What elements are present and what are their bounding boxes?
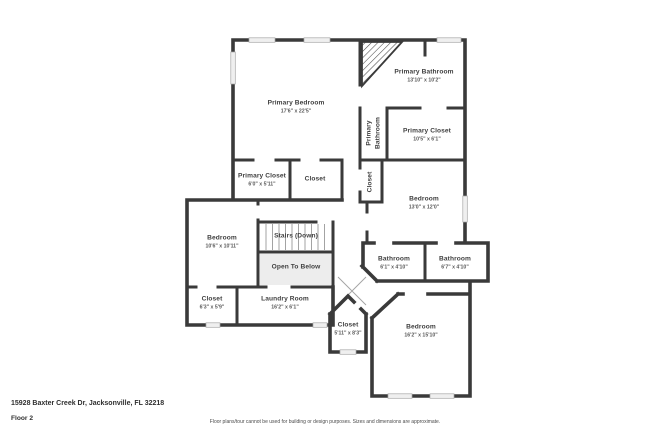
room-dims: 17'6" x 22'5" (268, 108, 325, 115)
room-dims: 6'7" x 4'10" (439, 264, 471, 271)
room-name: Primary Bedroom (268, 99, 325, 108)
room-label-primary-bathroom: Primary Bathroom 13'10" x 10'2" (394, 68, 453, 83)
room-label-stairs: Stairs (Down) (274, 233, 318, 242)
floor-plan-page: Primary Bedroom 17'6" x 22'5" Primary Ba… (0, 0, 650, 434)
room-label-primary-bathroom-wc: Primary Bathroom (365, 113, 382, 153)
room-label-bathroom-right: Bathroom 6'7" x 4'10" (439, 255, 471, 270)
room-name: Bedroom (205, 234, 238, 243)
room-label-primary-closet-left: Primary Closet 6'0" x 5'11" (238, 172, 286, 187)
room-dims: 16'2" x 15'10" (404, 332, 437, 339)
room-name: Closet (200, 295, 225, 304)
room-name: Primary Bathroom (394, 68, 453, 77)
room-dims: 16'2" x 6'1" (261, 304, 309, 311)
room-dims: 5'11" x 8'3" (334, 330, 361, 337)
room-label-open-to-below: Open To Below (272, 264, 321, 273)
room-label-closet-hall: Closet (367, 172, 376, 193)
room-name: Closet (367, 172, 376, 193)
room-name: Stairs (Down) (274, 233, 318, 242)
room-name: Bedroom (404, 323, 437, 332)
room-label-bedroom-right: Bedroom 13'0" x 12'0" (409, 195, 439, 210)
room-name: Bedroom (409, 195, 439, 204)
room-name: Bathroom (439, 255, 471, 264)
floor-plan-drawing (0, 0, 650, 434)
room-dims: 6'1" x 4'10" (378, 264, 410, 271)
room-name: Laundry Room (261, 295, 309, 304)
room-dims: 6'3" x 5'9" (200, 304, 225, 311)
room-name: Bathroom (378, 255, 410, 264)
room-label-closet-top: Closet (305, 176, 326, 185)
room-name: Closet (334, 321, 361, 330)
room-dims: 13'0" x 12'0" (409, 204, 439, 211)
room-name: Closet (305, 176, 326, 185)
footer-disclaimer: Floor plans/tour cannot be used for buil… (0, 419, 650, 425)
exterior-walls (187, 40, 488, 396)
room-dims: 6'0" x 5'11" (238, 181, 286, 188)
footer-address: 15928 Baxter Creek Dr, Jacksonville, FL … (11, 400, 164, 407)
room-dims: 10'6" x 10'11" (205, 243, 238, 250)
room-label-closet-bottom-left: Closet 6'3" x 5'9" (200, 295, 225, 310)
room-label-laundry-room: Laundry Room 16'2" x 6'1" (261, 295, 309, 310)
room-label-bedroom-left: Bedroom 10'6" x 10'11" (205, 234, 238, 249)
room-label-bedroom-bottom: Bedroom 16'2" x 15'10" (404, 323, 437, 338)
room-name: Open To Below (272, 264, 321, 273)
room-dims: 13'10" x 10'2" (394, 77, 453, 84)
room-label-closet-bottom: Closet 5'11" x 8'3" (334, 321, 361, 336)
room-label-bathroom-left: Bathroom 6'1" x 4'10" (378, 255, 410, 270)
room-name: Primary Bathroom (365, 113, 382, 153)
window-markers (206, 38, 467, 399)
room-label-primary-closet-right: Primary Closet 10'5" x 6'1" (403, 127, 451, 142)
room-name: Primary Closet (238, 172, 286, 181)
room-name: Primary Closet (403, 127, 451, 136)
room-dims: 10'5" x 6'1" (403, 136, 451, 143)
room-label-primary-bedroom: Primary Bedroom 17'6" x 22'5" (268, 99, 325, 114)
